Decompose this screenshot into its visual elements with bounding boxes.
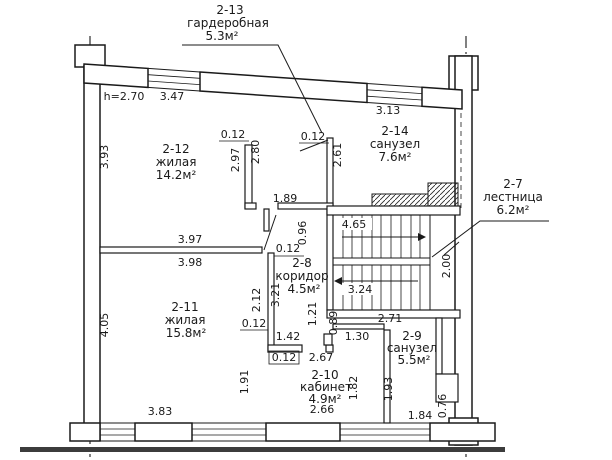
partition-2-14-bottom — [327, 206, 460, 215]
room-2-11-area: 15.8м² — [166, 326, 207, 340]
dim-397: 3.97 — [178, 233, 203, 246]
stair-arrow-up — [342, 233, 426, 241]
ground-line — [20, 447, 505, 452]
dim-184: 1.84 — [408, 409, 433, 422]
dim-271: 2.71 — [378, 312, 403, 325]
dim-212: 2.12 — [250, 288, 263, 313]
window-bottom-3 — [340, 429, 430, 435]
dim-193: 1.93 — [382, 377, 395, 402]
room-2-7-name: лестница — [483, 190, 543, 204]
window-bottom-2 — [192, 429, 266, 435]
room-2-13-id: 2-13 — [216, 3, 243, 17]
dim-383: 3.83 — [148, 405, 173, 418]
wall-bottom-seg2 — [135, 423, 192, 441]
wall-bottom-seg3 — [266, 423, 340, 441]
dim-267: 2.67 — [309, 351, 334, 364]
dim-405: 4.05 — [98, 313, 111, 338]
room-labels: 2-13 гардеробная 5.3м² 2-12 жилая 14.2м²… — [156, 3, 543, 406]
wall-left — [84, 66, 100, 440]
dim-313: 3.13 — [376, 104, 401, 117]
wall-top-seg3 — [422, 87, 462, 109]
partition-niche — [333, 324, 384, 329]
door-leaf-closet — [264, 209, 269, 231]
wall-bottom-seg1 — [70, 423, 100, 441]
dim-266: 2.66 — [310, 403, 335, 416]
room-2-12-name: жилая — [156, 155, 197, 169]
room-2-11-name: жилая — [165, 313, 206, 327]
dim-012-cab: 0.12 — [242, 317, 267, 330]
room-2-7-area: 6.2м² — [497, 203, 530, 217]
dim-261: 2.61 — [331, 143, 344, 168]
room-2-7-id: 2-7 — [503, 177, 523, 191]
dim-189: 1.89 — [273, 192, 298, 205]
room-2-11-id: 2-11 — [171, 300, 198, 314]
room-2-14-area: 7.6м² — [379, 150, 412, 164]
room-2-14-name: санузел — [370, 137, 420, 151]
dim-191: 1.91 — [238, 370, 251, 395]
window-top-2 — [367, 84, 422, 107]
room-2-13-area: 5.3м² — [206, 29, 239, 43]
wall-bottom-seg4 — [430, 423, 495, 441]
dim-130: 1.30 — [345, 330, 370, 343]
dim-465: 4.65 — [342, 218, 367, 231]
dim-182: 1.82 — [347, 376, 360, 401]
room-2-9-area: 5.5м² — [398, 353, 431, 367]
room-2-13-name: гардеробная — [187, 16, 269, 30]
dim-012-boxed: 0.12 — [272, 351, 297, 364]
dim-121: 1.21 — [306, 302, 319, 327]
dim-297: 2.97 — [229, 148, 242, 173]
room-2-12-id: 2-12 — [162, 142, 189, 156]
window-top-1 — [148, 68, 200, 91]
room-2-8-area: 4.5м² — [288, 282, 321, 296]
window-bottom-1 — [100, 429, 135, 435]
dim-012-214: 0.12 — [301, 130, 326, 143]
dim-324: 3.24 — [348, 283, 373, 296]
floor-plan-page: 2-13 гардеробная 5.3м² 2-12 жилая 14.2м²… — [0, 0, 612, 460]
dim-012-corridor: 0.12 — [276, 242, 301, 255]
ledge-2-14-bottom — [372, 194, 428, 206]
ledge-2-14-right — [428, 183, 458, 206]
room-2-8-id: 2-8 — [292, 256, 312, 270]
dim-393: 3.93 — [98, 145, 111, 170]
dim-089: 0.89 — [327, 311, 340, 336]
wall-top-seg1 — [84, 64, 148, 87]
dim-012-closet: 0.12 — [221, 128, 246, 141]
dim-076: 0.76 — [436, 394, 449, 419]
dim-142: 1.42 — [276, 330, 301, 343]
wall-top-seg2 — [200, 72, 367, 103]
room-2-8-name: коридор — [275, 269, 328, 283]
dim-398: 3.98 — [178, 256, 203, 269]
dim-200: 2.00 — [440, 254, 453, 279]
dim-347: 3.47 — [160, 90, 185, 103]
dim-ceiling-height: h=2.70 — [104, 90, 145, 103]
floor-plan: 2-13 гардеробная 5.3м² 2-12 жилая 14.2м²… — [0, 0, 612, 460]
partition-2-11-top — [100, 247, 262, 253]
leader-stair — [432, 221, 549, 257]
dim-321: 3.21 — [269, 283, 282, 308]
partition-closet-bottom-a — [245, 203, 256, 209]
room-2-12-area: 14.2м² — [156, 168, 197, 182]
room-2-14-id: 2-14 — [381, 124, 408, 138]
dim-280: 2.80 — [249, 140, 262, 165]
